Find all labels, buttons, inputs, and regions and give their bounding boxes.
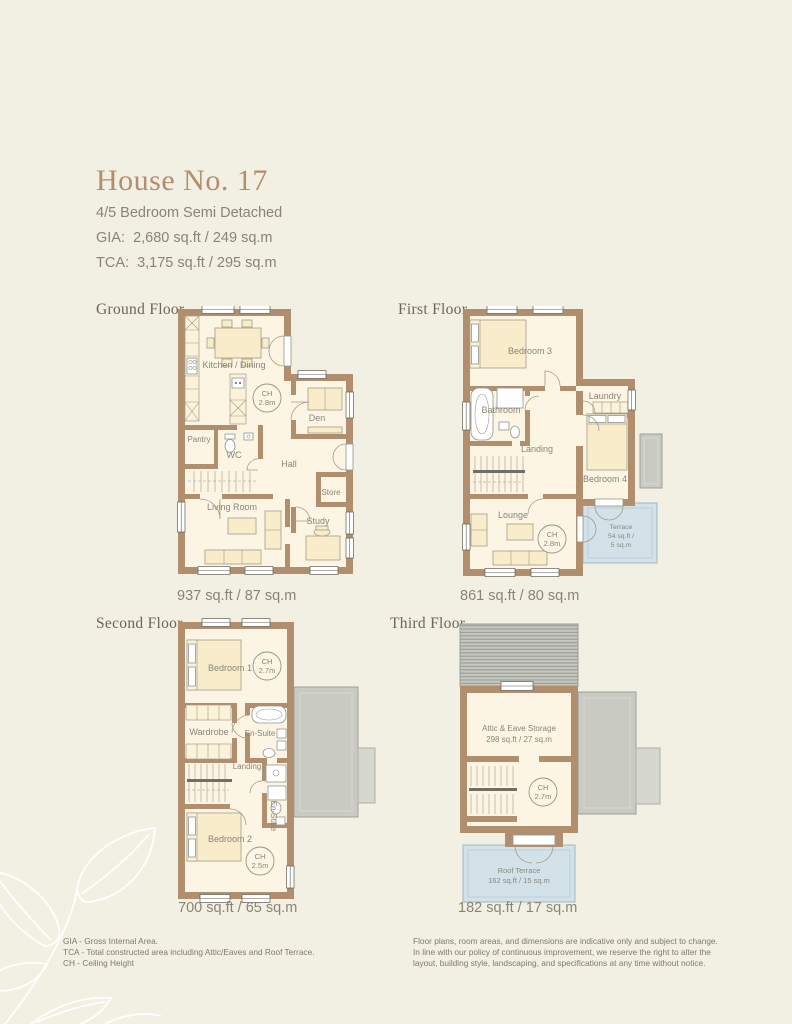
ground-ch-line2: 2.8m: [259, 398, 276, 407]
second-ch2-line2: 2.5m: [252, 861, 269, 870]
room-label-wc: WC: [227, 450, 242, 460]
terrace-label-2: 54 sq.ft /: [608, 533, 634, 540]
attic-label-2: 298 sq.ft / 27 sq.m: [486, 735, 552, 744]
room-label-bedroom4: Bedroom 4: [583, 474, 627, 484]
second-ch2-line1: CH: [255, 852, 266, 861]
room-label-den: Den: [309, 413, 326, 423]
room-label-pantry: Pantry: [187, 435, 210, 444]
room-label-store: Store: [321, 488, 341, 497]
third-floor-label: Third Floor: [390, 615, 465, 633]
room-label-hall: Hall: [281, 459, 297, 469]
third-ch-line1: CH: [538, 783, 549, 792]
room-label-study: Study: [306, 516, 330, 526]
header: House No. 17 4/5 Bedroom Semi Detached G…: [96, 164, 282, 280]
footer-abbreviations: GIA - Gross Internal Area. TCA - Total c…: [63, 936, 393, 969]
room-label-bathroom: Bathroom: [481, 405, 520, 415]
second-floor-plan: CH 2.7m CH 2.5m Bedroom 1 Wardrobe En-Su…: [172, 618, 377, 903]
room-label-landing-1f: Landing: [521, 444, 553, 454]
room-label-wardrobe: Wardrobe: [189, 727, 228, 737]
room-label-living: Living Room: [207, 502, 257, 512]
third-floor-plan: Roof Terrace 162 sq.ft / 15 sq.m CH 2.7m…: [455, 618, 670, 903]
terrace-label-1: Terrace: [610, 524, 633, 531]
third-floor-area: 182 sq.ft / 17 sq.m: [458, 900, 577, 916]
page-title: House No. 17: [96, 164, 282, 198]
room-label-bedroom3: Bedroom 3: [508, 346, 552, 356]
pitched-roof-hatch: [460, 624, 578, 686]
second-floor-area: 700 sq.ft / 65 sq.m: [178, 900, 297, 916]
footer-disclaimer: Floor plans, room areas, and dimensions …: [413, 936, 743, 969]
room-label-kitchen: Kitchen / Dining: [202, 360, 265, 370]
ground-floor-area: 937 sq.ft / 87 sq.m: [177, 588, 296, 604]
second-ch1-line2: 2.7m: [259, 666, 276, 675]
ground-floor-plan: CH 2.8m Kitchen / Dining Den Pantry WC H…: [170, 306, 370, 584]
room-label-laundry: Laundry: [589, 391, 622, 401]
first-floor-plan: Terrace 54 sq.ft / 5 sq.m: [455, 306, 670, 584]
room-label-lounge: Lounge: [498, 510, 528, 520]
disclaimer-line-1: Floor plans, room areas, and dimensions …: [413, 936, 743, 947]
subtitle: 4/5 Bedroom Semi Detached: [96, 205, 282, 221]
ground-ch-line1: CH: [262, 389, 273, 398]
room-label-landing-2f: Landing: [233, 762, 261, 771]
tca-line: TCA: 3,175 sq.ft / 295 sq.m: [96, 255, 282, 271]
second-floor-label: Second Floor: [96, 615, 183, 633]
roof-terrace-label-1: Roof Terrace: [498, 866, 541, 875]
disclaimer-line-3: layout, building style, landscaping, and…: [413, 958, 743, 969]
first-floor-area: 861 sq.ft / 80 sq.m: [460, 588, 579, 604]
attic-label-1: Attic & Eave Storage: [482, 724, 556, 733]
first-ch-line1: CH: [547, 530, 558, 539]
second-ch1-line1: CH: [262, 657, 273, 666]
first-ch-line2: 2.8m: [544, 539, 561, 548]
room-label-bedroom2: Bedroom 2: [208, 834, 252, 844]
footer-note-gia: GIA - Gross Internal Area.: [63, 936, 393, 947]
room-label-ensuite2: En-Suite: [269, 801, 278, 832]
room-label-ensuite1: En-Suite: [245, 729, 276, 738]
gia-line: GIA: 2,680 sq.ft / 249 sq.m: [96, 230, 282, 246]
footer-note-tca: TCA - Total constructed area including A…: [63, 947, 393, 958]
terrace-label-3: 5 sq.m: [611, 542, 632, 549]
brochure-page: House No. 17 4/5 Bedroom Semi Detached G…: [0, 0, 792, 1024]
room-label-bedroom1: Bedroom 1: [208, 663, 252, 673]
third-ch-line2: 2.7m: [535, 792, 552, 801]
footer-note-ch: CH - Ceiling Height: [63, 958, 393, 969]
roof-terrace-label-2: 162 sq.ft / 15 sq.m: [488, 876, 550, 885]
disclaimer-line-2: In line with our policy of continuous im…: [413, 947, 743, 958]
